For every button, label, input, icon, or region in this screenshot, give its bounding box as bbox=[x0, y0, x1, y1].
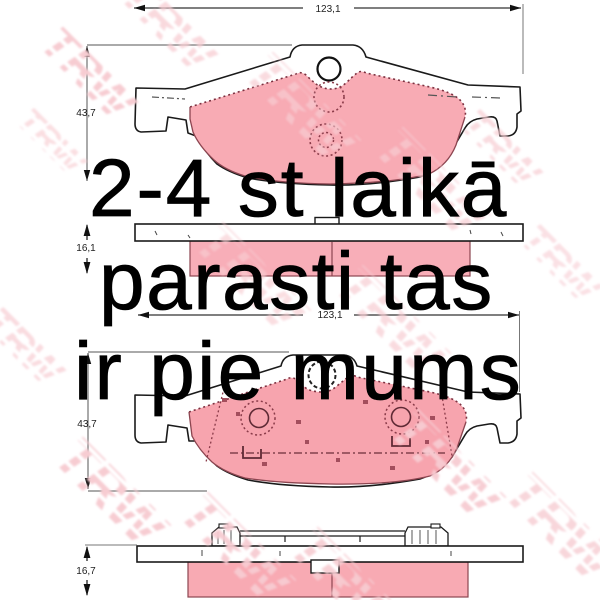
svg-text:2-4 st laikā: 2-4 st laikā bbox=[89, 143, 508, 234]
svg-text:ir pie mums: ir pie mums bbox=[74, 326, 523, 417]
svg-text:parasti tas: parasti tas bbox=[99, 236, 494, 327]
svg-text:16,7: 16,7 bbox=[76, 566, 96, 577]
svg-text:123,1: 123,1 bbox=[315, 4, 340, 15]
svg-text:16,1: 16,1 bbox=[76, 243, 96, 254]
